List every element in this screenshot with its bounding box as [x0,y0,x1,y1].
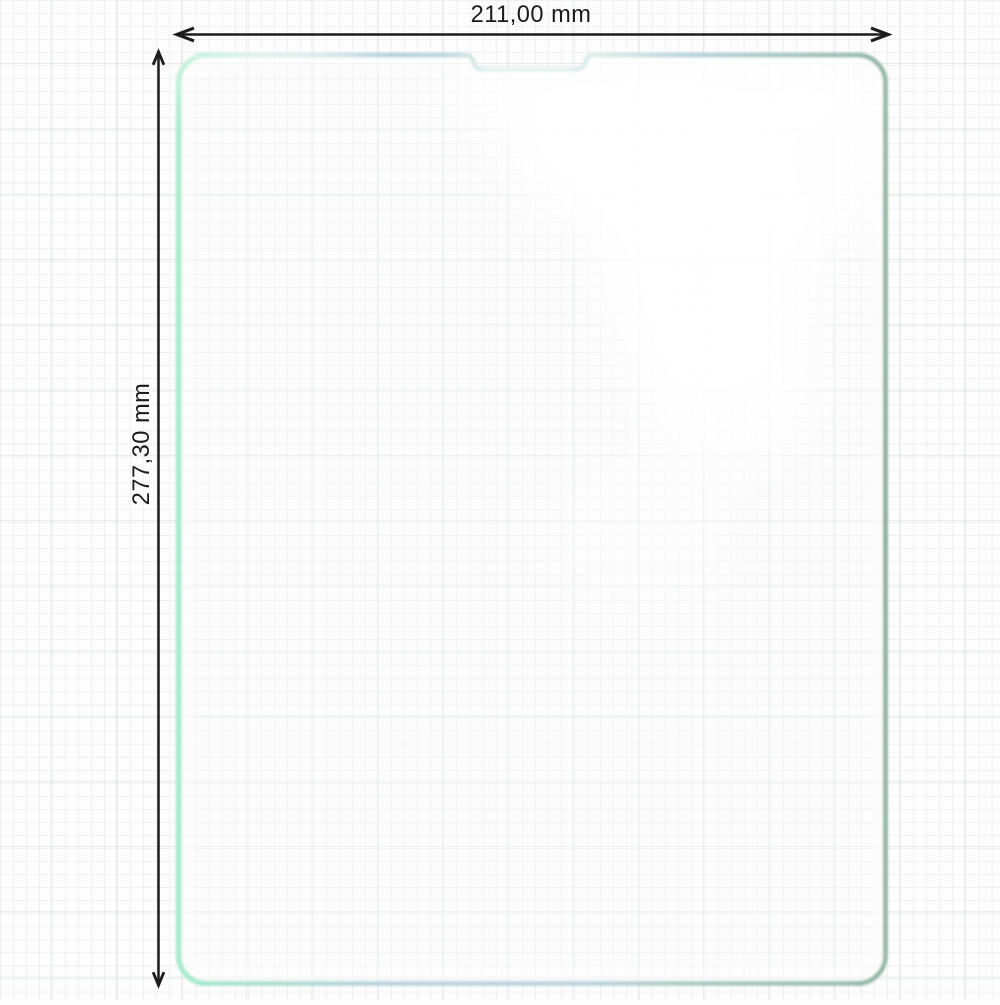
svg-text:277,30 mm: 277,30 mm [129,383,155,506]
svg-text:211,00 mm: 211,00 mm [471,2,592,28]
